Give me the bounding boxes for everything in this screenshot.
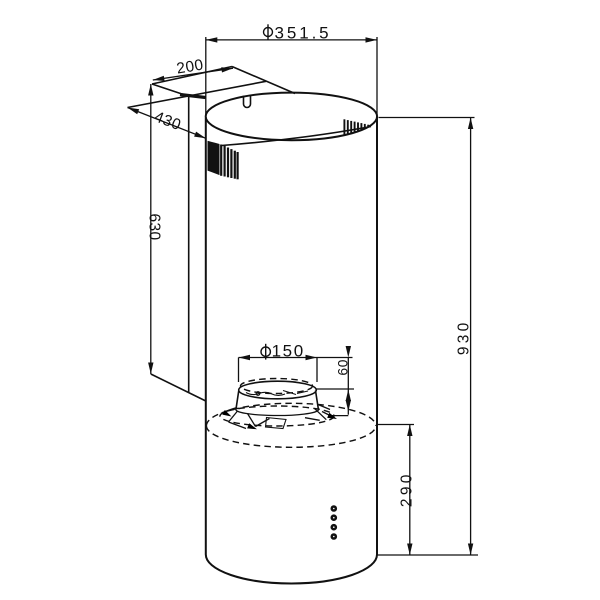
svg-text:351.5: 351.5 [275,24,332,43]
svg-text:630: 630 [145,213,162,240]
svg-text:290: 290 [399,471,416,507]
svg-text:930: 930 [455,319,472,355]
svg-text:60: 60 [335,359,350,376]
svg-text:150: 150 [272,342,305,361]
